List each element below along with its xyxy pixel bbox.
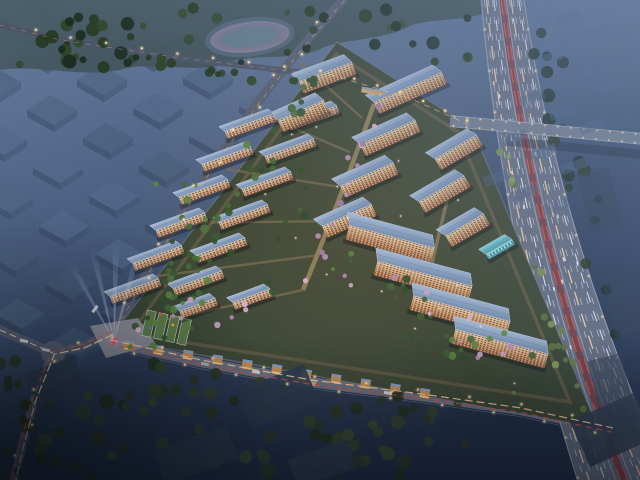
architectural-aerial-rendering — [0, 0, 640, 480]
night-aerial-scene — [0, 0, 640, 480]
